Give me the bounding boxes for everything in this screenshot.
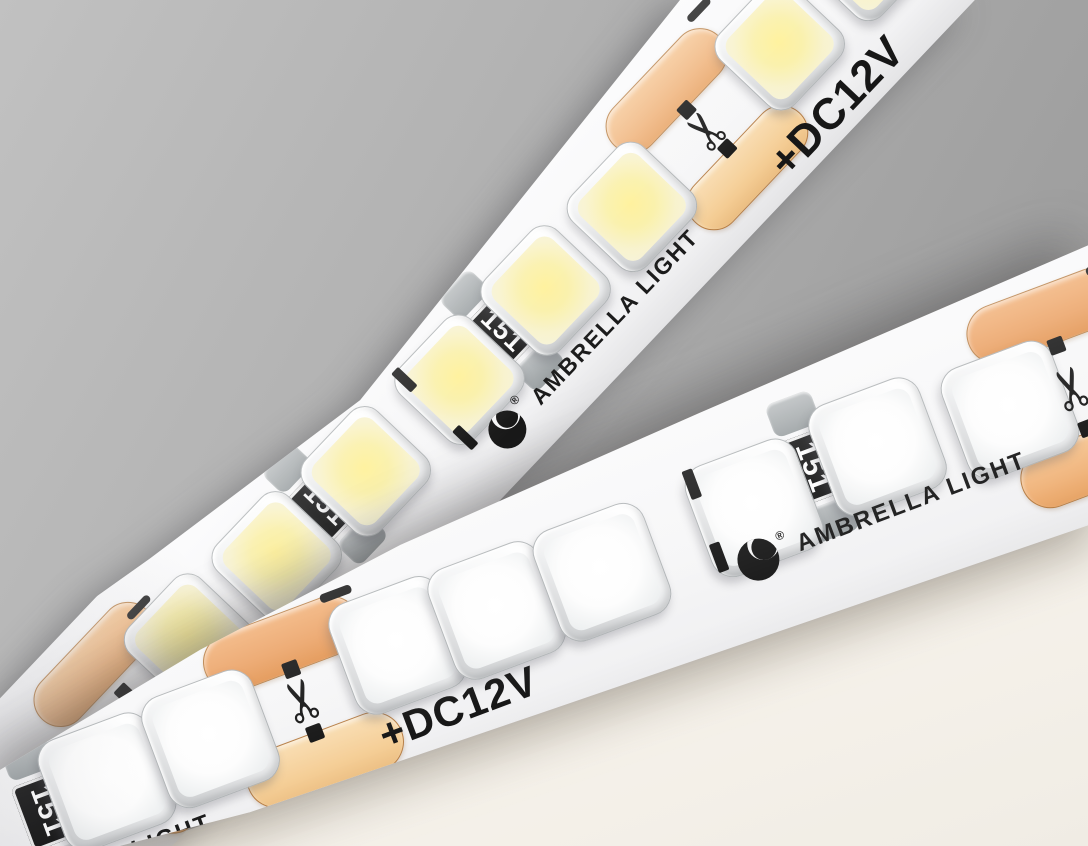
led-phosphor xyxy=(541,511,663,633)
led-phosphor xyxy=(149,678,271,800)
led-strip-cool-surface: 151151✂✂®AMBRELLA LIGHT®AMBRELLA LIGHT+D… xyxy=(0,114,1088,846)
led-strip-cool: 151151✂✂®AMBRELLA LIGHT®AMBRELLA LIGHT+D… xyxy=(0,0,1088,846)
registered-mark: ® xyxy=(773,528,786,544)
led-strip-cool-shadow: 151151✂✂®AMBRELLA LIGHT®AMBRELLA LIGHT+D… xyxy=(0,0,1088,846)
product-photo-canvas: 151151✂✂✂®AMBRELLA LIGHT+DC12V 151151✂✂®… xyxy=(0,0,1088,846)
scissors-icon: ✂ xyxy=(268,668,337,732)
